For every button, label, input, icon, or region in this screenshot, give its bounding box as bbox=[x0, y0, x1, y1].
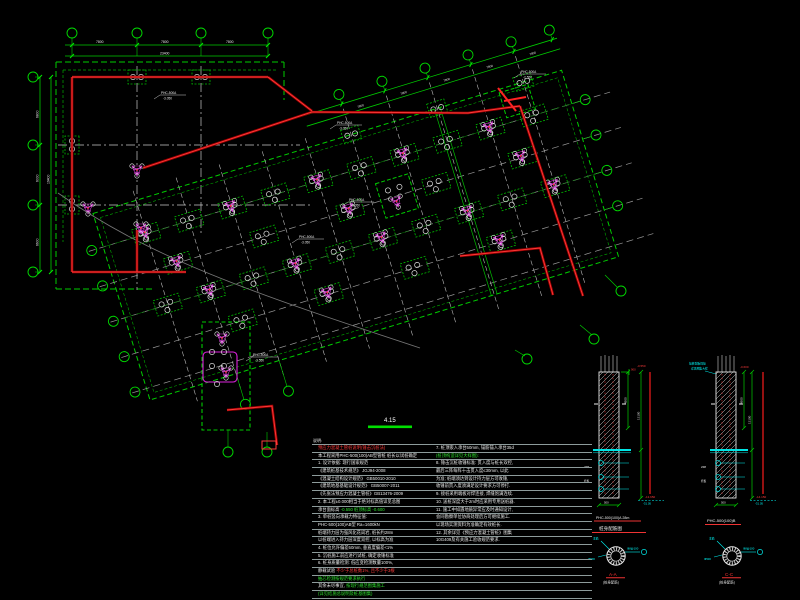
annotation-label: PHC-500A bbox=[299, 235, 315, 239]
plan-title-block: 4.15 bbox=[368, 418, 412, 428]
annotation-label: PHC-500A bbox=[521, 70, 537, 74]
diameter-label: Φ500 bbox=[704, 557, 711, 561]
section-label: C-C bbox=[725, 572, 734, 577]
pile-length-dim: 13100 bbox=[748, 415, 752, 424]
annotation-level: -3.050 bbox=[351, 204, 360, 208]
segment-dim: 4500 bbox=[740, 397, 744, 404]
detail-subtitle: PHC-500(100)A 28m bbox=[596, 516, 629, 520]
annotation-level: -3.050 bbox=[339, 127, 348, 131]
annotation-level: -2.550 bbox=[523, 76, 532, 80]
note-row: 预应力混凝土管桩说明(锤击沉桩法)7. 桩顶嵌入承台50mm, 锚筋锚入承台35… bbox=[312, 444, 592, 452]
note-row: 本工程采用PHC-500(100)AB型管桩 桩长以试桩确定 (桩顶构造详见大样… bbox=[312, 452, 592, 460]
top-dimension-chain: 7800 7800 7800 23400 bbox=[65, 28, 273, 58]
pile-tip-level: -13.650 bbox=[645, 495, 656, 499]
annotation-level: -3.050 bbox=[301, 241, 310, 245]
note-row: 《先张法预应力混凝土管桩》GB13476-20099. 接桩采用端板对焊连接, … bbox=[312, 490, 592, 498]
note-row: 《建筑桩基技术规范》 JGJ94-2008 最后三阵每阵十击贯入度≤30mm, … bbox=[312, 467, 592, 475]
pile-section-1: Φ8@100 主筋 Φ500 A-A (桩身配筋) bbox=[588, 537, 647, 585]
note-row: 以桩端进入持力层深度双控, 以标高为准 10G409及有关施工验收规范要求. bbox=[312, 536, 592, 544]
column-grid-lines bbox=[128, 56, 585, 401]
note-row: 2. 本工程±0.000相当于绝对标高值详见总图10. 送桩深度大于2m时应采用… bbox=[312, 498, 592, 506]
dim-total-text: 19400 bbox=[47, 174, 51, 184]
note-row: 《建筑地基基础设计规范》 GB50007-2011 收锤前贯入度须满足设计要求方… bbox=[312, 482, 592, 490]
note-row: (详见结施总说明及桩基图集) bbox=[312, 590, 592, 598]
dim-total-text: 23400 bbox=[160, 52, 170, 56]
annotation-level: -3.050 bbox=[163, 97, 172, 101]
note-row: 桩端持力层为强风化花岗岩, 桩长约28m12. 其余详见《预应力混凝土管桩》图集 bbox=[312, 529, 592, 537]
note-row: 4. 桩位允许偏差50mm, 垂直度偏差<1% bbox=[312, 544, 592, 552]
pile-section-2: Φ8@100 主筋 Φ500 C-C (桩身配筋) bbox=[704, 537, 763, 585]
note-row: 6. 桩身质量检测: 低应变检测数量100%, bbox=[312, 559, 592, 567]
pile-length-dim: 13100 bbox=[637, 411, 641, 420]
spiral-label: Φ8@100 bbox=[743, 547, 755, 551]
rebar-label: 主筋 bbox=[709, 537, 715, 541]
annotation-label: PHC-500A bbox=[253, 353, 269, 357]
dowel-bars bbox=[601, 355, 617, 372]
width-dim: 500 bbox=[604, 501, 609, 505]
title-underline-bar bbox=[368, 426, 412, 429]
annotation-level: -3.550 bbox=[255, 359, 264, 363]
annotation-label: PHC-500A bbox=[349, 198, 365, 202]
dim-text: 6600 bbox=[36, 238, 40, 246]
anchor-dim: 900 bbox=[631, 368, 636, 372]
note-row: 1. 设计依据: 现行国家规范8. 锤击沉桩收锤标准: 贯入度与桩长双控, bbox=[312, 459, 592, 467]
detail-title: PHC-500(100)B bbox=[707, 518, 736, 523]
note-row: 静载试验 不少于总桩数1%, 且不少于3根 bbox=[312, 567, 592, 575]
detail-title: 桩身配筋图 bbox=[599, 525, 622, 532]
general-notes-table: 预应力混凝土管桩说明(锤击沉桩法)7. 桩顶嵌入承台50mm, 锚筋锚入承台35… bbox=[312, 444, 592, 585]
width-dim: 500 bbox=[721, 501, 726, 505]
dowel-bars bbox=[718, 355, 734, 372]
plan-title: 4.15 bbox=[384, 418, 396, 424]
corner-bubbles bbox=[515, 275, 626, 364]
dim-text: 7800 bbox=[96, 40, 104, 44]
large-pile-cap bbox=[202, 322, 272, 457]
dim-text: 7800 bbox=[357, 103, 365, 109]
rotated-outline bbox=[93, 70, 619, 400]
dim-text: 7800 bbox=[400, 90, 408, 96]
note-row: 抽芯检测按规范要求执行 bbox=[312, 575, 592, 583]
spiral-label: Φ8@100 bbox=[627, 547, 639, 551]
pile-detail-1: 900 -0.550 4500 13100 -13.650 -31.05 2Φ8… bbox=[584, 355, 664, 533]
pile-detail-2: 接桩端板焊接 详见图集大样 -0.600 4500 13100 -14.150 … bbox=[689, 355, 776, 525]
dim-text: 7800 bbox=[443, 77, 451, 83]
annotation-label: PHC-500A bbox=[161, 91, 177, 95]
segment-dim: 4500 bbox=[624, 397, 628, 404]
orthogonal-wing bbox=[56, 62, 312, 290]
dim-text: 6800 bbox=[36, 110, 40, 118]
note-row: PHC-500(100)AB型 Ra=1600kN 以现场实测资料为准确定有效桩… bbox=[312, 521, 592, 529]
note-row: 其余未尽事宜, 按现行规范图集施工 bbox=[312, 582, 592, 590]
dim-text: 7800 bbox=[226, 40, 234, 44]
section-sublabel: (桩身配筋) bbox=[603, 580, 619, 585]
micro-label: 托板 bbox=[701, 479, 707, 483]
pile-top-level: -0.600 bbox=[740, 365, 749, 369]
terrain-spline bbox=[58, 193, 420, 348]
pile-tip-level: -14.150 bbox=[756, 495, 767, 499]
left-dimension-chain: 6800 6000 6600 19400 bbox=[28, 72, 53, 277]
annotation-label: PHC-500A bbox=[337, 121, 353, 125]
section-sublabel: (桩身配筋) bbox=[719, 580, 735, 585]
dim-text: 6000 bbox=[36, 174, 40, 182]
dim-text: 7800 bbox=[529, 50, 537, 56]
splice-note: 接桩端板焊接 bbox=[689, 362, 706, 366]
bore-level: -31.05 bbox=[755, 502, 763, 506]
section-label: A-A bbox=[609, 572, 618, 577]
splice-note2: 详见图集大样 bbox=[691, 367, 708, 371]
red-wall-lines bbox=[72, 77, 583, 449]
dim-text: 7800 bbox=[486, 64, 494, 70]
cad-viewport: 7800 7800 7800 23400 6800 6000 6600 1940… bbox=[0, 0, 800, 600]
pile-top-level: -0.550 bbox=[637, 364, 646, 368]
note-row: 承台面标高 -0.550 桩顶标高 -0.60011. 施工中如遇地质异常应及时… bbox=[312, 506, 592, 514]
rebar-label: 主筋 bbox=[593, 537, 599, 541]
note-row: 《混凝土结构设计规范》 GB50010-2010 为准; 桩端须达到设计持力层方… bbox=[312, 475, 592, 483]
notes-heading: 说明: bbox=[313, 437, 322, 443]
bore-level: -31.05 bbox=[643, 502, 651, 506]
pile-group-boundary bbox=[203, 352, 237, 382]
grid-axes bbox=[58, 66, 312, 290]
note-row: 5. 沉桩施工前应进行试桩, 确定收锤标准 bbox=[312, 552, 592, 560]
note-row: 3. 单桩竖向承载力特征值: 会同勘察单位协商处理后方可继续施工. bbox=[312, 513, 592, 521]
micro-label: 2Φ8 bbox=[701, 465, 707, 469]
dim-text: 7800 bbox=[161, 40, 169, 44]
